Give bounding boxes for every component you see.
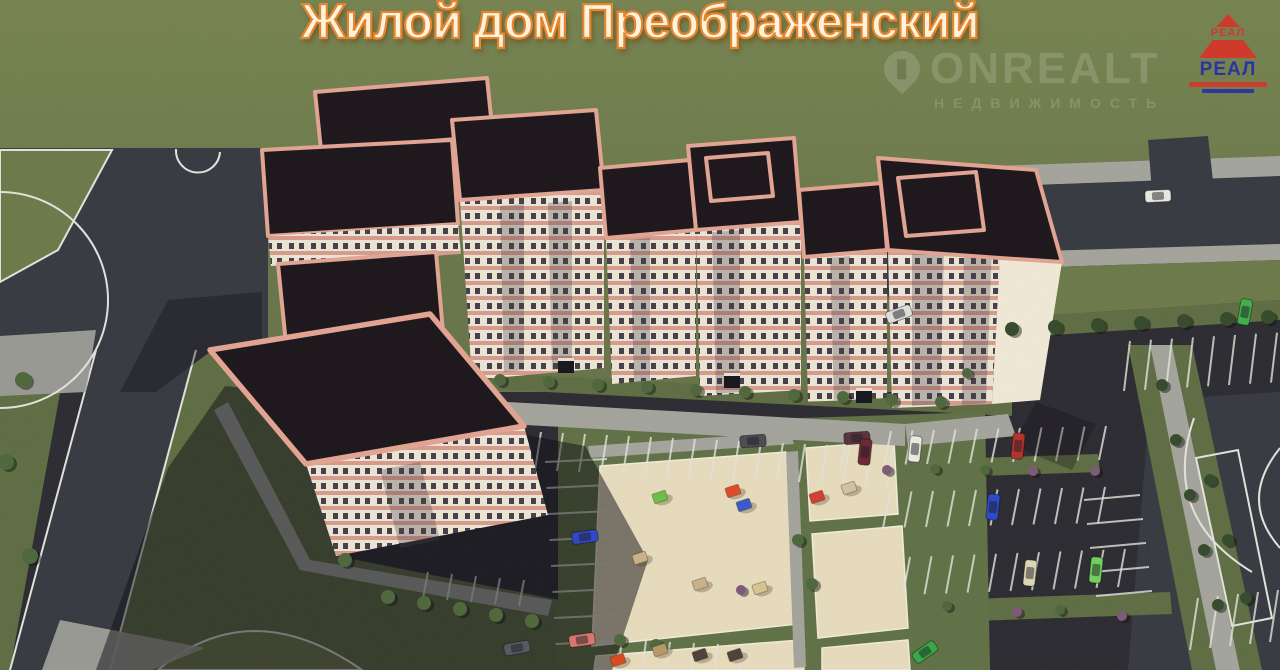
real-logo-main-text: РЕАЛ bbox=[1200, 60, 1257, 79]
real-logo-top-text: РЕАЛ bbox=[1211, 28, 1245, 39]
page-title: Жилой дом Преображенский bbox=[0, 0, 1280, 50]
real-logo-building-icon bbox=[1199, 40, 1257, 58]
real-logo-fineprint-line bbox=[1189, 82, 1267, 87]
render-scene: Жилой дом Преображенский ONREALT НЕДВИЖИ… bbox=[0, 0, 1280, 670]
location-pin-icon bbox=[877, 44, 928, 95]
watermark-tagline: НЕДВИЖИМОСТЬ bbox=[934, 95, 1280, 111]
real-logo-roof-icon bbox=[1216, 14, 1240, 27]
watermark-brand: ONREALT bbox=[930, 44, 1160, 94]
real-agency-logo: РЕАЛ РЕАЛ bbox=[1186, 14, 1270, 93]
real-logo-fineprint-line bbox=[1202, 89, 1254, 93]
